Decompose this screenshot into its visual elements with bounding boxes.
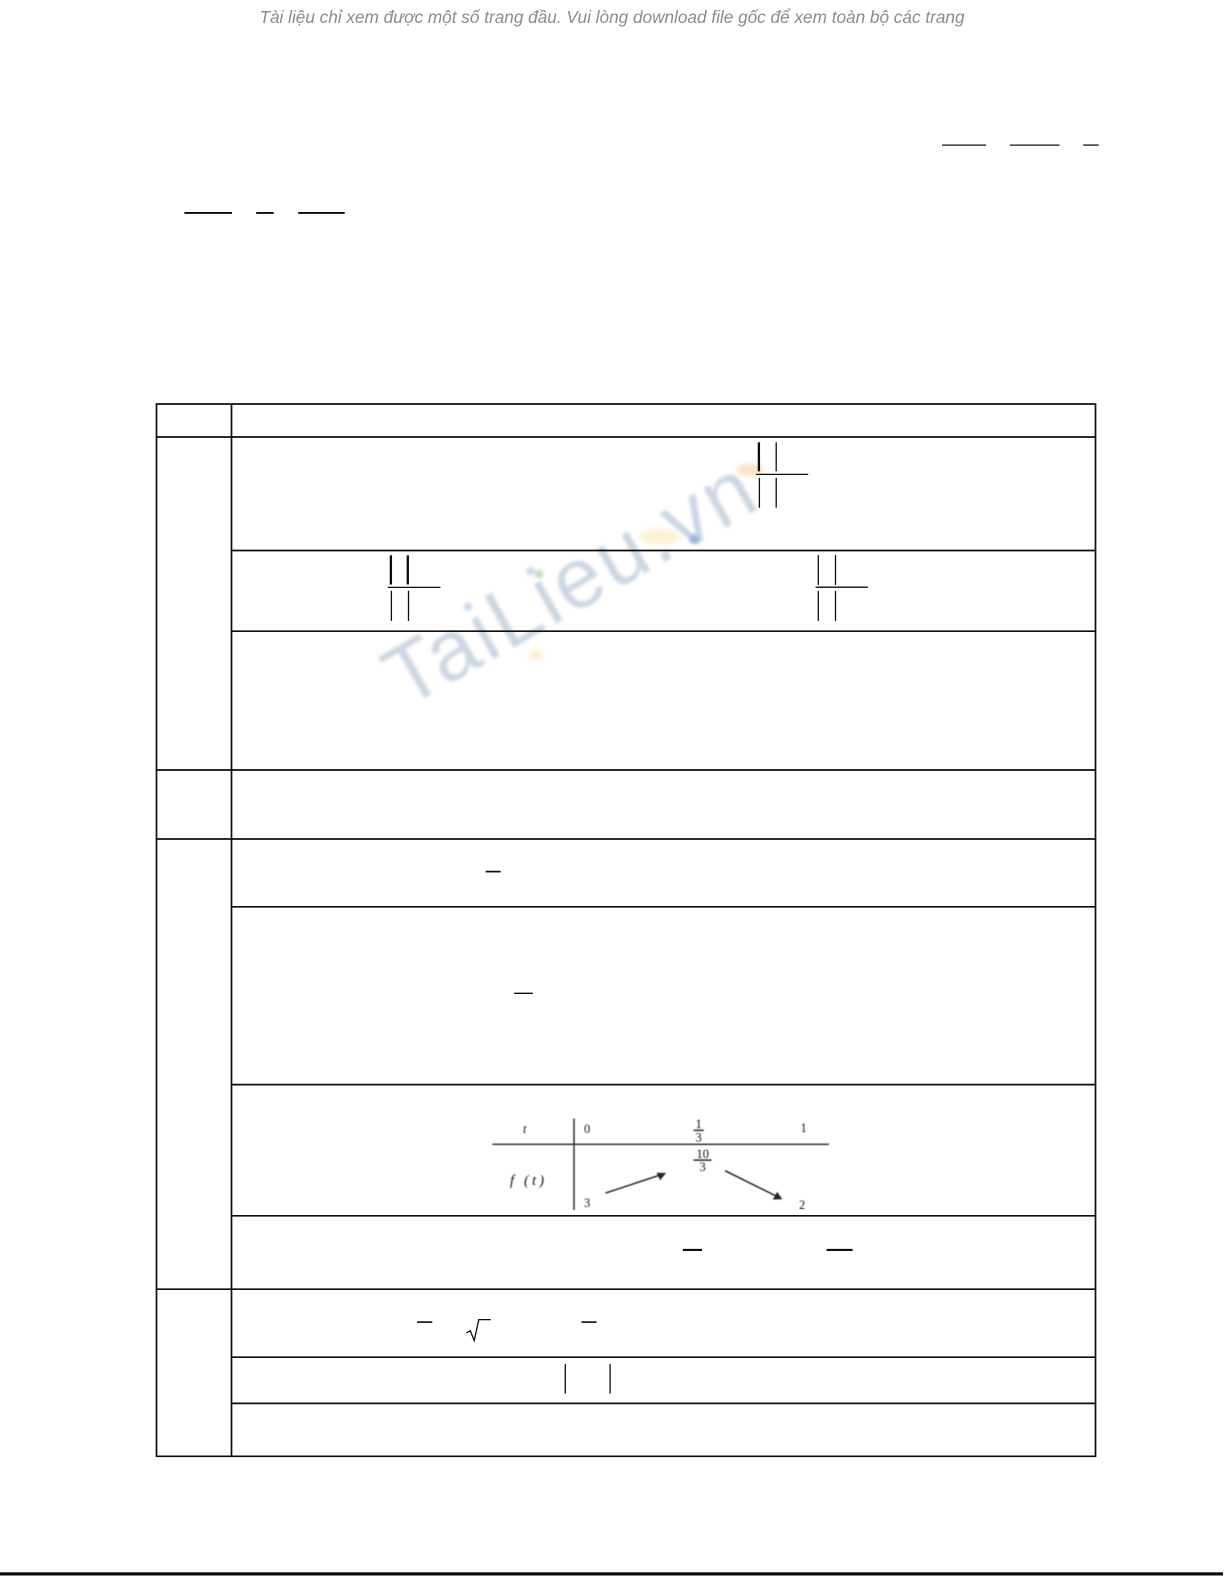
- svg-text:f (t): f (t): [510, 1173, 547, 1189]
- svg-text:3: 3: [700, 1160, 706, 1174]
- svg-text:2: 2: [799, 1198, 805, 1212]
- svg-text:3: 3: [696, 1131, 702, 1145]
- svg-text:10: 10: [697, 1147, 710, 1161]
- svg-text:3: 3: [584, 1196, 590, 1210]
- svg-text:1: 1: [696, 1117, 702, 1131]
- svg-text:t: t: [523, 1122, 527, 1136]
- svg-text:1: 1: [801, 1121, 807, 1135]
- svg-text:Tài liệu chỉ xem được một số t: Tài liệu chỉ xem được một số trang đầu. …: [259, 7, 964, 27]
- svg-text:0: 0: [584, 1122, 590, 1136]
